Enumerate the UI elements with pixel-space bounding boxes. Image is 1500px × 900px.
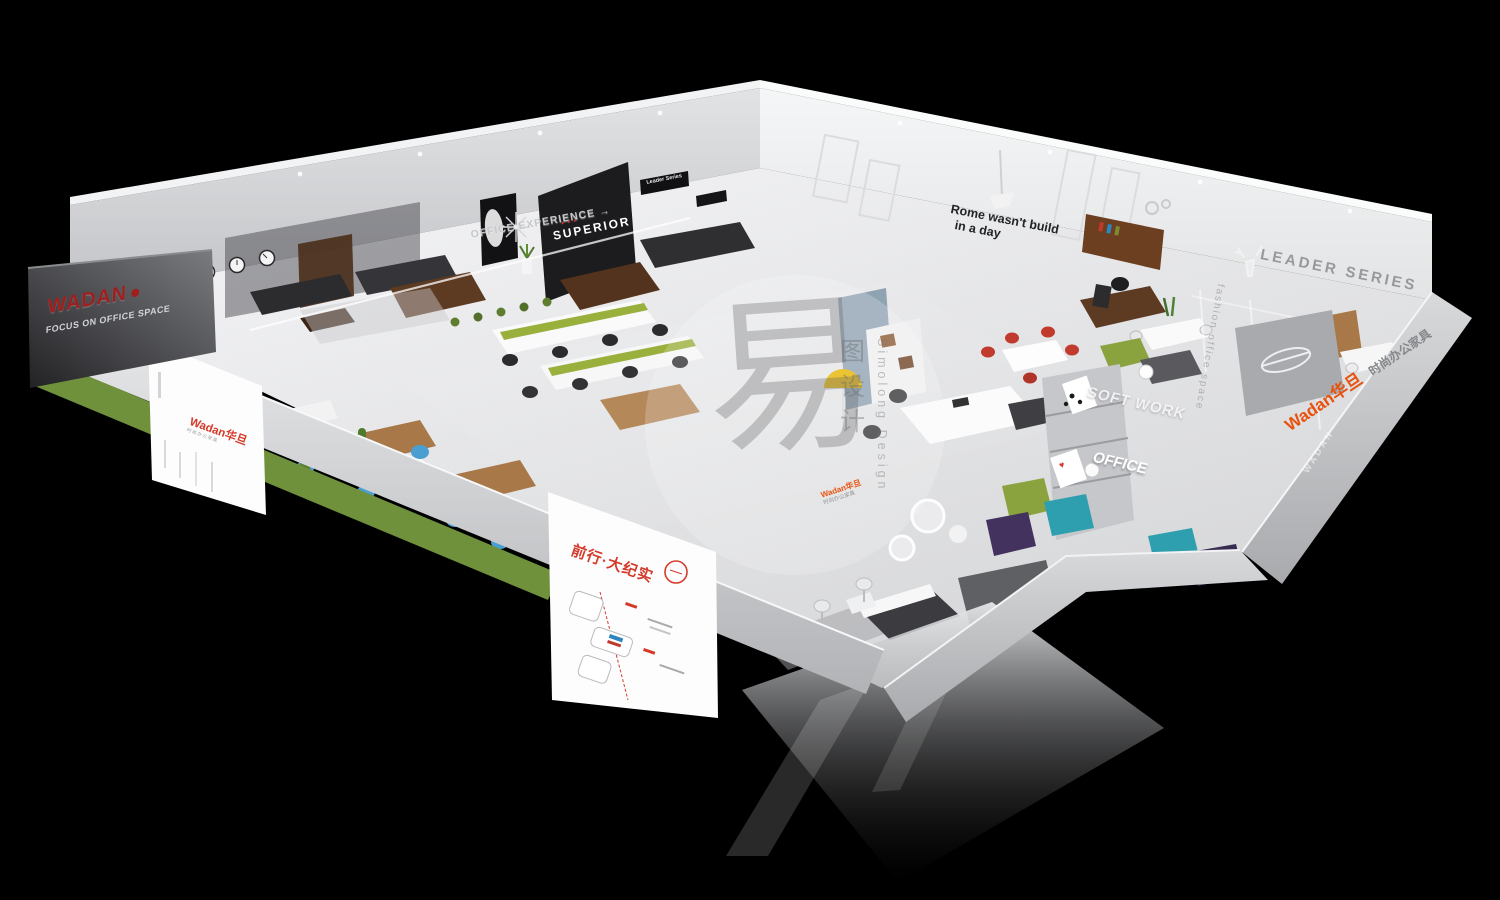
watermark-en-text: Simolong Design bbox=[874, 338, 888, 493]
wadan-logomark-icon bbox=[131, 288, 139, 298]
watermark-cn-text: 图设计 bbox=[836, 338, 864, 443]
showroom-3d-render: 易 图设计 Simolong Design WADAN FOCUS ON OFF… bbox=[0, 0, 1500, 900]
arrow-icon: → bbox=[598, 204, 611, 218]
